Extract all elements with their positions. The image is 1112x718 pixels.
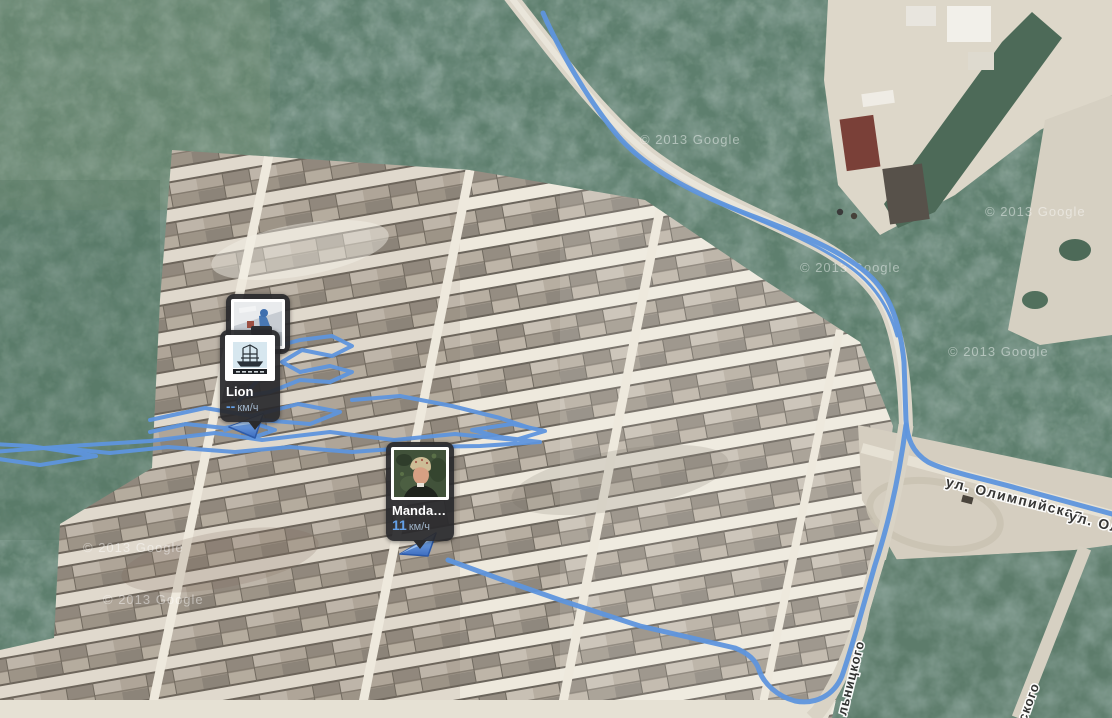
- mandarin-photo: [391, 447, 449, 500]
- satellite-map[interactable]: © 2013 Google © 2013 Google © 2013 Googl…: [0, 0, 1112, 718]
- lion-stamp-photo: [225, 335, 275, 381]
- car: [837, 209, 843, 215]
- marker-speed: 11км/ч: [392, 518, 448, 535]
- svg-text:© 2013 Google: © 2013 Google: [640, 132, 741, 147]
- marker-tail: [248, 421, 262, 430]
- marker-mandarin[interactable]: Manda… 11км/ч: [386, 442, 454, 541]
- svg-text:© 2013 Google: © 2013 Google: [948, 344, 1049, 359]
- marker-name: Manda…: [392, 503, 448, 518]
- svg-text:© 2013 Google: © 2013 Google: [103, 592, 204, 607]
- marker-tail: [413, 540, 427, 549]
- svg-text:© 2013 Google: © 2013 Google: [83, 540, 184, 555]
- map-canvas[interactable]: © 2013 Google © 2013 Google © 2013 Googl…: [0, 0, 1112, 718]
- speed-value: 11: [392, 517, 407, 533]
- speed-unit: км/ч: [237, 402, 258, 414]
- car: [851, 213, 857, 219]
- marker-speed: --км/ч: [226, 399, 274, 416]
- svg-text:© 2013 Google: © 2013 Google: [985, 204, 1086, 219]
- speed-value: --: [226, 398, 235, 414]
- speed-unit: км/ч: [409, 521, 430, 533]
- marker-lion[interactable]: Lion --км/ч: [220, 330, 280, 422]
- marker-name: Lion: [226, 384, 274, 399]
